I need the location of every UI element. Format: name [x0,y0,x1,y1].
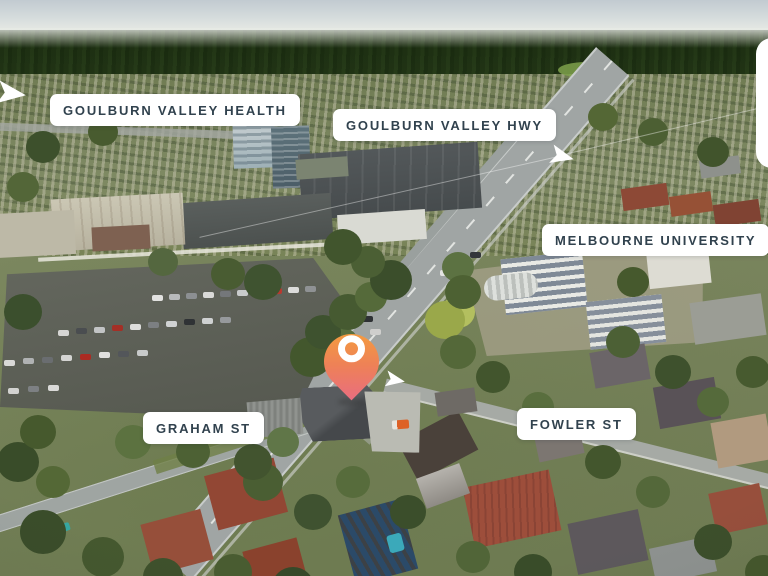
label-graham-st: GRAHAM ST [143,412,264,444]
aerial-photo [0,0,768,576]
photo-vignette [0,0,768,576]
label-fowler-st: FOWLER ST [517,408,636,440]
label-melbourne-university: MELBOURNE UNIVERSITY [542,224,768,256]
label-goulburn-valley-hwy: GOULBURN VALLEY HWY [333,109,556,141]
label-goulburn-valley-health: GOULBURN VALLEY HEALTH [50,94,300,126]
aerial-location-map: GOULBURN VALLEY HEALTH GOULBURN VALLEY H… [0,0,768,576]
page-corner-tab [756,38,768,168]
